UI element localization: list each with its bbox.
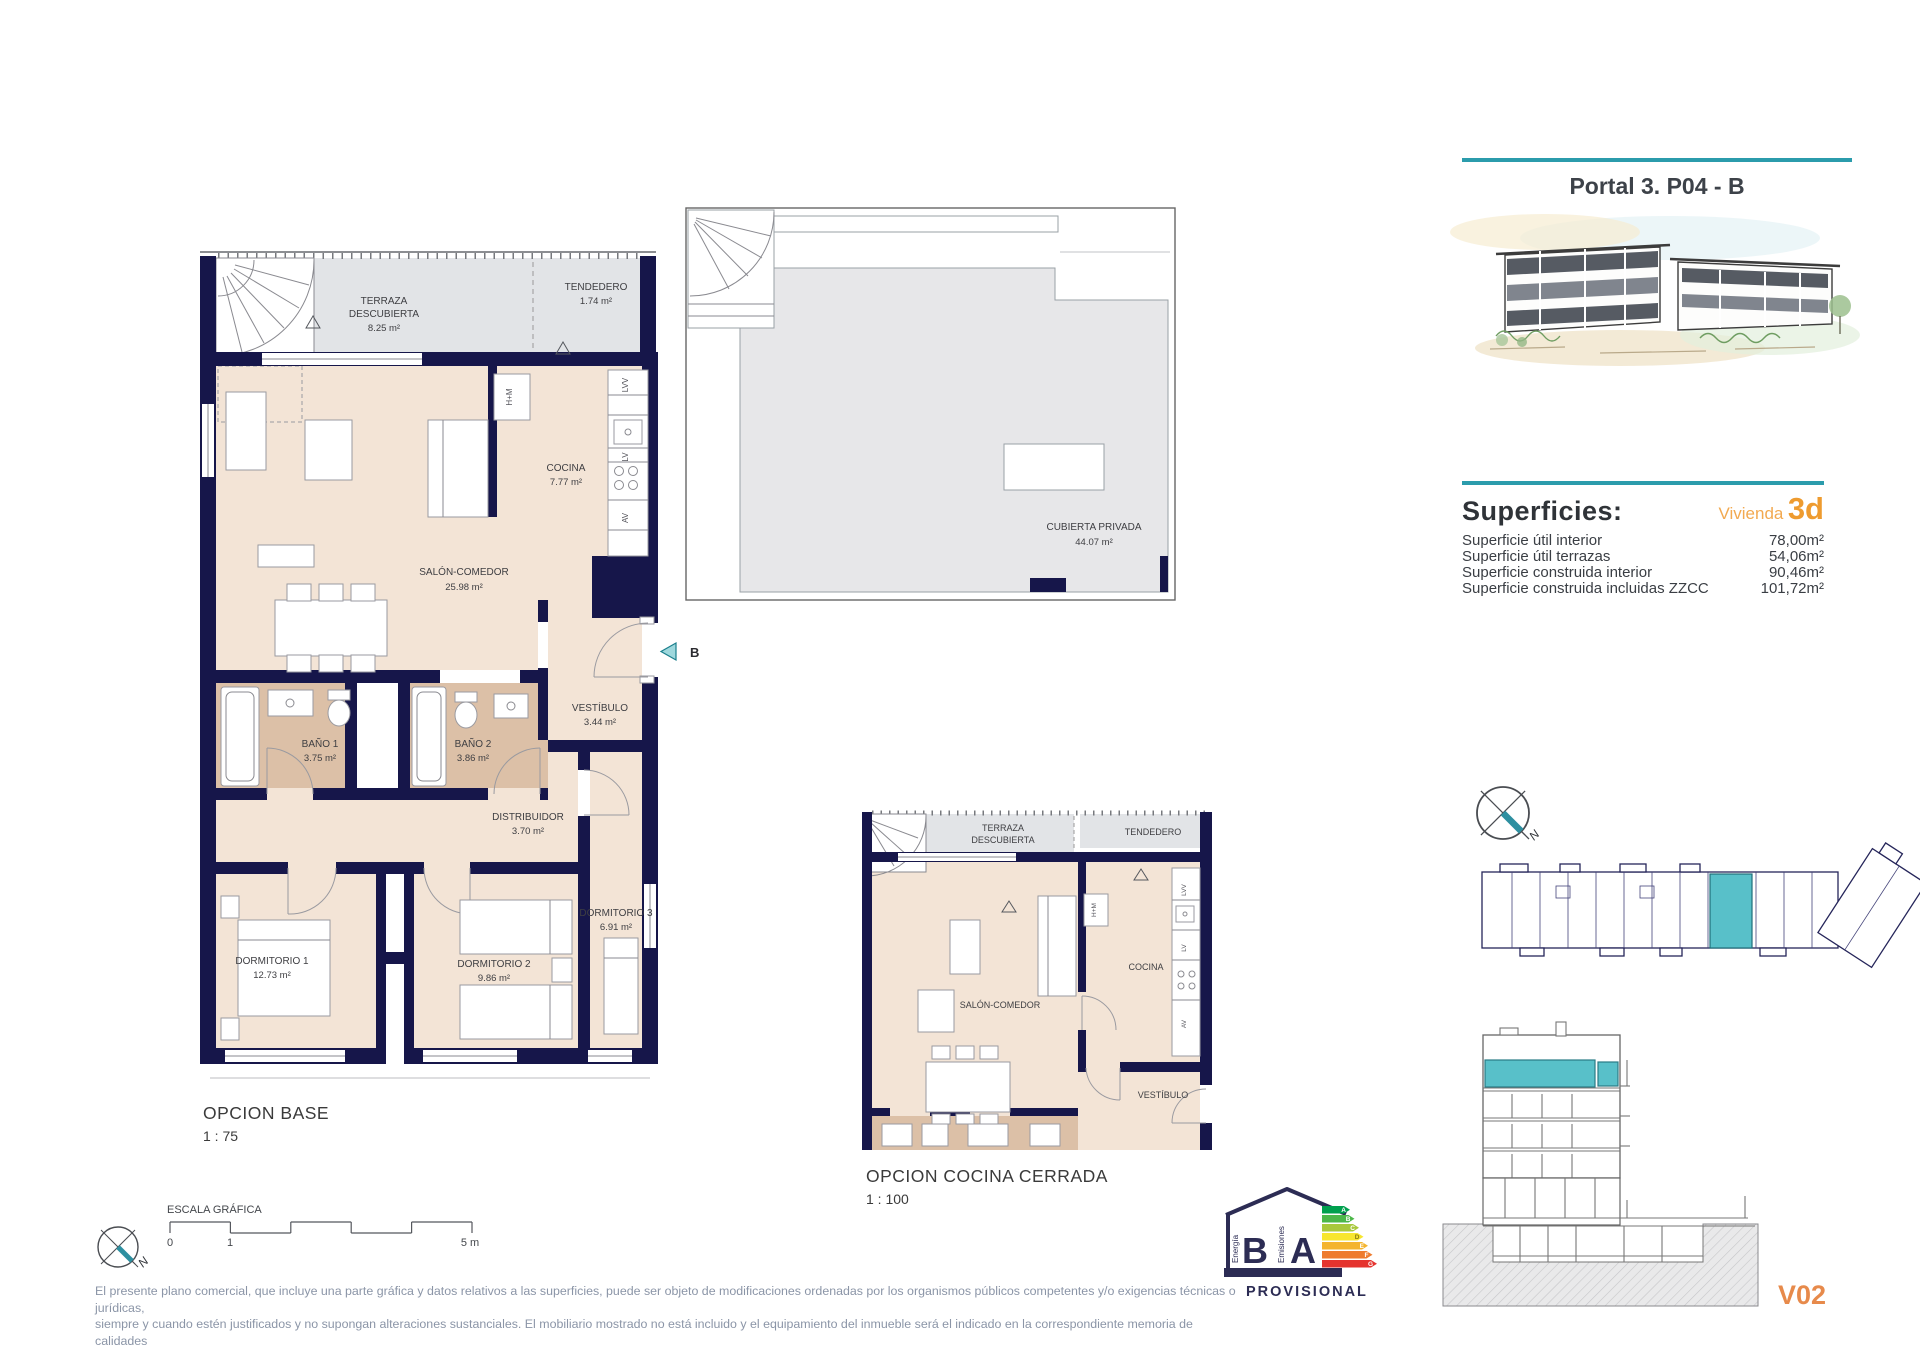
plan-sheet: LVV LV AV H+M [0, 0, 1920, 1355]
room-area: 9.86 m² [478, 973, 510, 984]
vivienda-value: 3d [1788, 491, 1824, 526]
disclaimer-line: El presente plano comercial, que incluye… [95, 1283, 1247, 1316]
energy-letter: B [1242, 1230, 1268, 1271]
building-illustration [1450, 214, 1860, 366]
appliance-label-lv: LV [621, 452, 630, 462]
room-area: 3.70 m² [512, 826, 544, 837]
emisiones-label: Emisiones [1277, 1226, 1286, 1263]
room-area: 25.98 m² [445, 582, 483, 593]
grade-letter: B [1346, 1216, 1351, 1223]
room-area: 6.91 m² [600, 922, 632, 933]
small-cut-fixtures [882, 1124, 1060, 1146]
appliance-label-lv: LV [1181, 944, 1188, 952]
room-area: 7.77 m² [550, 477, 582, 488]
room-label: DESCUBIERTA [349, 309, 420, 320]
unit-header: Portal 3. P04 - B [1462, 158, 1852, 200]
room-label: DORMITORIO 1 [235, 956, 309, 967]
room-area: 8.25 m² [368, 323, 400, 334]
grade-letter: A [1341, 1207, 1346, 1214]
row-value: 54,06m² [1769, 549, 1824, 565]
grade-letter: E [1360, 1243, 1365, 1250]
scale-tick: 0 [167, 1237, 173, 1249]
energy-rating-label: Energía B Emisiones A A B C D E F G [1224, 1189, 1377, 1277]
appliance-label-lvv: LVV [621, 377, 630, 392]
grade-letter: D [1355, 1234, 1360, 1241]
room-label: VESTÍBULO [572, 701, 628, 714]
energia-label: Energía [1231, 1234, 1240, 1263]
shaft [357, 683, 398, 788]
room-label: TERRAZA [361, 296, 408, 307]
table-row: Superficie construida incluidas ZZCC 101… [1462, 581, 1824, 597]
entry-label: B [690, 645, 699, 660]
caption-title: OPCION BASE [203, 1103, 329, 1124]
header-rule [1462, 158, 1852, 162]
room-area: 12.73 m² [253, 970, 291, 981]
appliance-label-av: AV [1181, 1019, 1188, 1028]
staircase-icon [216, 258, 314, 356]
room-label: DORMITORIO 2 [457, 959, 531, 970]
main-floor-plan: LVV LV AV H+M [200, 252, 699, 1078]
room-label: BAÑO 1 [302, 737, 339, 750]
room-label: COCINA [1128, 962, 1163, 972]
disclaimer-line: siempre y cuando estén justificados y no… [95, 1316, 1247, 1349]
appliance-label-av: AV [621, 512, 630, 523]
row-value: 101,72m² [1761, 581, 1824, 597]
room-label: SALÓN-COMEDOR [419, 565, 508, 578]
room-label: TENDEDERO [565, 282, 628, 293]
row-label: Superficie construida interior [1462, 565, 1652, 581]
row-value: 90,46m² [1769, 565, 1824, 581]
caption-title: OPCION COCINA CERRADA [866, 1166, 1108, 1187]
north-label: N [135, 1254, 151, 1270]
site-plan [1482, 839, 1920, 968]
page-title: Portal 3. P04 - B [1462, 173, 1852, 200]
highlighted-floor [1598, 1062, 1618, 1086]
roof-plan: CUBIERTA PRIVADA 44.07 m² [686, 208, 1175, 600]
north-label: N [1526, 827, 1542, 843]
roof-area: 44.07 m² [1075, 537, 1113, 548]
superficies-heading: Superficies: [1462, 496, 1623, 527]
highlighted-floor [1485, 1060, 1595, 1087]
room-label: SALÓN-COMEDOR [960, 1000, 1041, 1010]
caption-scale: 1 : 75 [203, 1128, 329, 1144]
scale-tick: 5 m [461, 1237, 479, 1249]
room-label: DESCUBIERTA [971, 835, 1034, 845]
appliance-label-lvv: LVV [1181, 883, 1188, 895]
appliance-label-hm: H+M [1091, 903, 1098, 917]
emissions-letter: A [1290, 1230, 1316, 1271]
sheet-graphics: LVV LV AV H+M [0, 0, 1920, 1355]
vivienda-label: Vivienda [1718, 504, 1783, 523]
highlighted-unit [1710, 874, 1752, 948]
entry-marker: B [661, 643, 699, 660]
room-label: DISTRIBUIDOR [492, 812, 564, 823]
small-plan: LVV LV AV H+M TERRAZA DESCUBIERTA TENDED… [862, 812, 1212, 1150]
version-code: V02 [1778, 1280, 1826, 1311]
row-label: Superficie útil interior [1462, 533, 1602, 549]
main-plan-caption: OPCION BASE 1 : 75 [203, 1103, 329, 1144]
scale-bar-title: ESCALA GRÁFICA [167, 1203, 262, 1216]
scale-bar: ESCALA GRÁFICA 0 1 5 m [167, 1203, 479, 1249]
appliance-label-hm: H+M [505, 388, 514, 405]
room-area: 3.75 m² [304, 753, 336, 764]
legal-disclaimer: El presente plano comercial, que incluye… [95, 1283, 1247, 1349]
grade-letter: G [1368, 1261, 1373, 1268]
room-label: VESTÍBULO [1138, 1090, 1189, 1100]
roof-label: CUBIERTA PRIVADA [1046, 522, 1141, 533]
room-label: DORMITORIO 3 [579, 908, 653, 919]
caption-scale: 1 : 100 [866, 1191, 1108, 1207]
table-row: Superficie construida interior 90,46m² [1462, 565, 1824, 581]
grade-letter: C [1350, 1225, 1355, 1232]
closet [386, 964, 404, 1064]
small-plan-caption: OPCION COCINA CERRADA 1 : 100 [866, 1166, 1108, 1207]
closet [386, 874, 404, 952]
small-staircase-icon [866, 814, 926, 876]
entry-arrow-icon [661, 643, 676, 660]
room-label: BAÑO 2 [455, 737, 492, 750]
provisional-label: PROVISIONAL [1246, 1284, 1368, 1300]
building-section [1443, 1022, 1758, 1306]
room-area: 3.86 m² [457, 753, 489, 764]
table-row: Superficie útil interior 78,00m² [1462, 533, 1824, 549]
energy-arrows: A B C D E F G [1322, 1206, 1377, 1268]
room-area: 1.74 m² [580, 296, 612, 307]
row-label: Superficie útil terrazas [1462, 549, 1610, 565]
room-label: COCINA [547, 463, 586, 474]
superficies-rule [1462, 481, 1824, 485]
row-value: 78,00m² [1769, 533, 1824, 549]
compass: N [1477, 787, 1542, 843]
room-label: TENDEDERO [1125, 827, 1182, 837]
scale-tick: 1 [227, 1237, 233, 1249]
grade-letter: F [1365, 1252, 1369, 1259]
superficies-table: Superficies: Vivienda 3d Superficie útil… [1462, 481, 1824, 597]
room-area: 3.44 m² [584, 717, 616, 728]
roof-staircase-icon [688, 210, 774, 328]
compass: N [98, 1227, 151, 1270]
room-label: TERRAZA [982, 823, 1024, 833]
table-row: Superficie útil terrazas 54,06m² [1462, 549, 1824, 565]
row-label: Superficie construida incluidas ZZCC [1462, 581, 1709, 597]
